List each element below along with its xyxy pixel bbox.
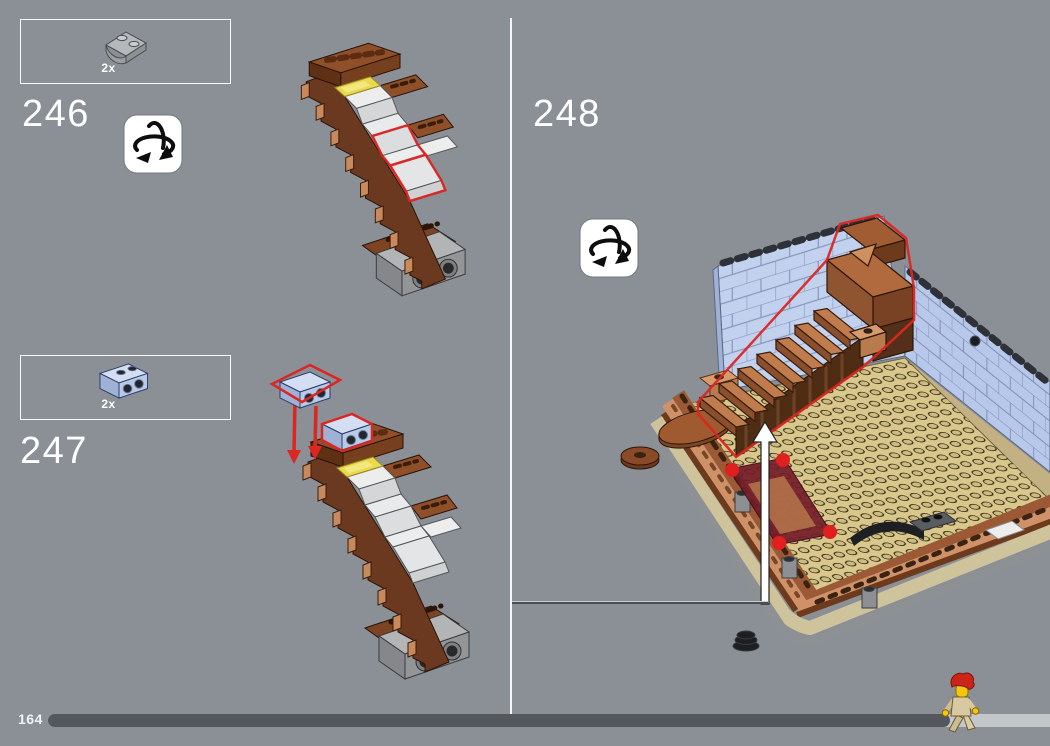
part-qty-label: 2x bbox=[101, 397, 115, 411]
walking-minifig-progress-icon bbox=[942, 671, 980, 737]
rotate-model-icon bbox=[123, 114, 183, 174]
callout-line bbox=[512, 601, 768, 604]
step-number-248: 248 bbox=[533, 95, 601, 133]
page-divider bbox=[510, 18, 512, 714]
assembly-step-248 bbox=[532, 200, 1050, 690]
instruction-page: { "steps": [ { "label": "246", "part_qty… bbox=[0, 0, 1050, 746]
page-number: 164 bbox=[18, 711, 43, 727]
part-callout-box-246: 2x bbox=[20, 19, 231, 84]
placement-arrows bbox=[287, 400, 322, 464]
part-qty-label: 2x bbox=[101, 61, 115, 75]
part-callout-box-247: 2x bbox=[20, 355, 231, 420]
step-number-246: 246 bbox=[22, 95, 90, 133]
progress-bar[interactable] bbox=[48, 714, 1050, 727]
progress-fill bbox=[48, 714, 950, 727]
assembly-step-247 bbox=[250, 360, 478, 695]
assembly-step-246 bbox=[252, 30, 474, 312]
step-number-247: 247 bbox=[20, 432, 88, 470]
